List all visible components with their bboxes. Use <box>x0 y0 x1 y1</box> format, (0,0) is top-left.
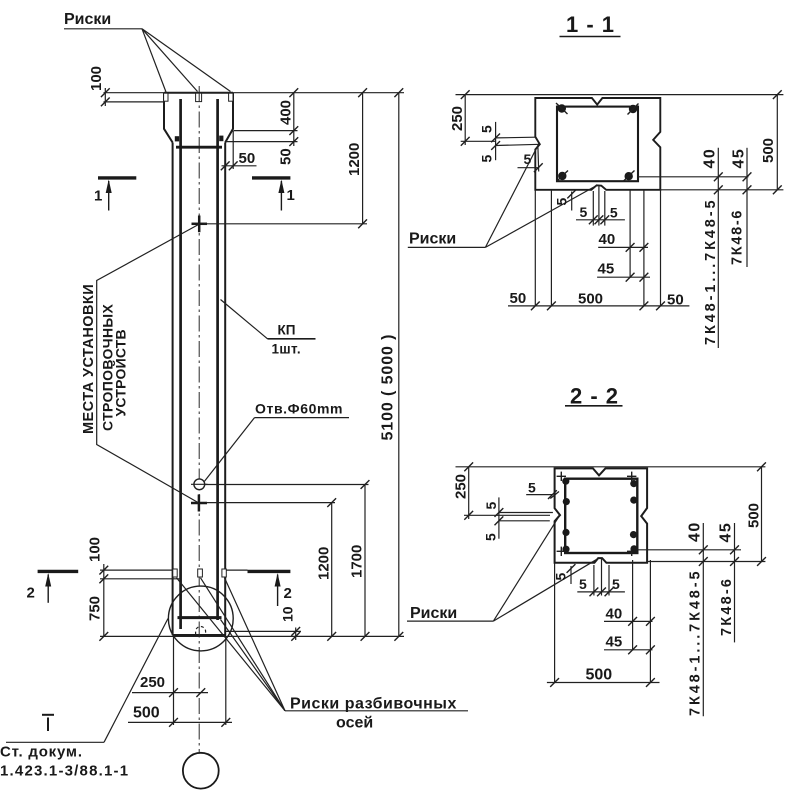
svg-text:1: 1 <box>94 188 102 205</box>
svg-text:Риски: Риски <box>409 231 456 248</box>
svg-text:7К48-1...7К48-5: 7К48-1...7К48-5 <box>688 569 704 716</box>
svg-text:40: 40 <box>687 521 704 542</box>
svg-text:1.423.1-3/88.1-1: 1.423.1-3/88.1-1 <box>0 763 129 780</box>
svg-text:45: 45 <box>606 634 623 651</box>
svg-text:40: 40 <box>702 148 719 169</box>
svg-text:7К48-1...7К48-5: 7К48-1...7К48-5 <box>703 198 719 345</box>
svg-text:750: 750 <box>87 596 104 621</box>
svg-text:Риски: Риски <box>410 605 457 622</box>
svg-text:Отв.Ф60mm: Отв.Ф60mm <box>255 401 343 417</box>
svg-text:50: 50 <box>510 290 527 307</box>
svg-text:45: 45 <box>718 522 735 543</box>
svg-text:500: 500 <box>578 291 603 308</box>
svg-text:5: 5 <box>554 198 570 206</box>
svg-text:500: 500 <box>746 503 763 528</box>
svg-text:5: 5 <box>483 502 499 510</box>
svg-text:250: 250 <box>140 674 165 691</box>
svg-text:Ст. докум.: Ст. докум. <box>0 744 83 761</box>
svg-text:5: 5 <box>483 533 499 541</box>
svg-text:100: 100 <box>87 537 104 562</box>
svg-text:40: 40 <box>599 231 616 248</box>
svg-text:КП: КП <box>278 323 296 338</box>
svg-text:10: 10 <box>280 606 296 622</box>
svg-text:500: 500 <box>133 705 160 722</box>
svg-text:400: 400 <box>278 100 295 125</box>
svg-text:5: 5 <box>553 573 569 581</box>
svg-text:1200: 1200 <box>316 547 333 580</box>
svg-text:250: 250 <box>452 474 469 499</box>
svg-text:45: 45 <box>731 148 748 169</box>
svg-text:7К48-6: 7К48-6 <box>719 577 735 636</box>
svg-text:2: 2 <box>27 585 35 602</box>
svg-text:Риски: Риски <box>64 11 111 28</box>
svg-text:УСТРОЙСТВ: УСТРОЙСТВ <box>112 329 129 416</box>
svg-text:5: 5 <box>479 125 495 133</box>
svg-text:5: 5 <box>610 205 618 221</box>
svg-text:5: 5 <box>580 204 588 220</box>
svg-text:250: 250 <box>449 106 466 131</box>
svg-text:1 - 1: 1 - 1 <box>566 12 615 37</box>
svg-text:500: 500 <box>760 138 777 163</box>
svg-text:5: 5 <box>579 576 587 592</box>
svg-text:50: 50 <box>278 148 295 165</box>
svg-text:50: 50 <box>239 150 256 167</box>
svg-text:2: 2 <box>284 585 292 602</box>
svg-text:45: 45 <box>598 261 615 278</box>
svg-text:Риски разбивочных: Риски разбивочных <box>290 696 457 713</box>
svg-text:7К48-6: 7К48-6 <box>730 209 746 265</box>
svg-text:1200: 1200 <box>346 143 363 176</box>
svg-text:1700: 1700 <box>349 545 366 578</box>
svg-text:МЕСТА УСТАНОВКИ: МЕСТА УСТАНОВКИ <box>81 284 97 434</box>
svg-text:1шт.: 1шт. <box>272 342 302 357</box>
svg-text:5100 ( 5000 ): 5100 ( 5000 ) <box>380 334 397 441</box>
svg-text:500: 500 <box>586 667 613 684</box>
svg-text:100: 100 <box>88 66 105 91</box>
svg-text:5: 5 <box>479 155 495 163</box>
svg-text:осей: осей <box>336 715 373 732</box>
svg-text:2 - 2: 2 - 2 <box>570 384 619 409</box>
svg-text:5: 5 <box>612 576 620 592</box>
svg-text:5: 5 <box>528 480 536 496</box>
svg-text:40: 40 <box>606 606 623 623</box>
svg-text:1: 1 <box>287 187 295 204</box>
svg-text:50: 50 <box>667 292 684 309</box>
